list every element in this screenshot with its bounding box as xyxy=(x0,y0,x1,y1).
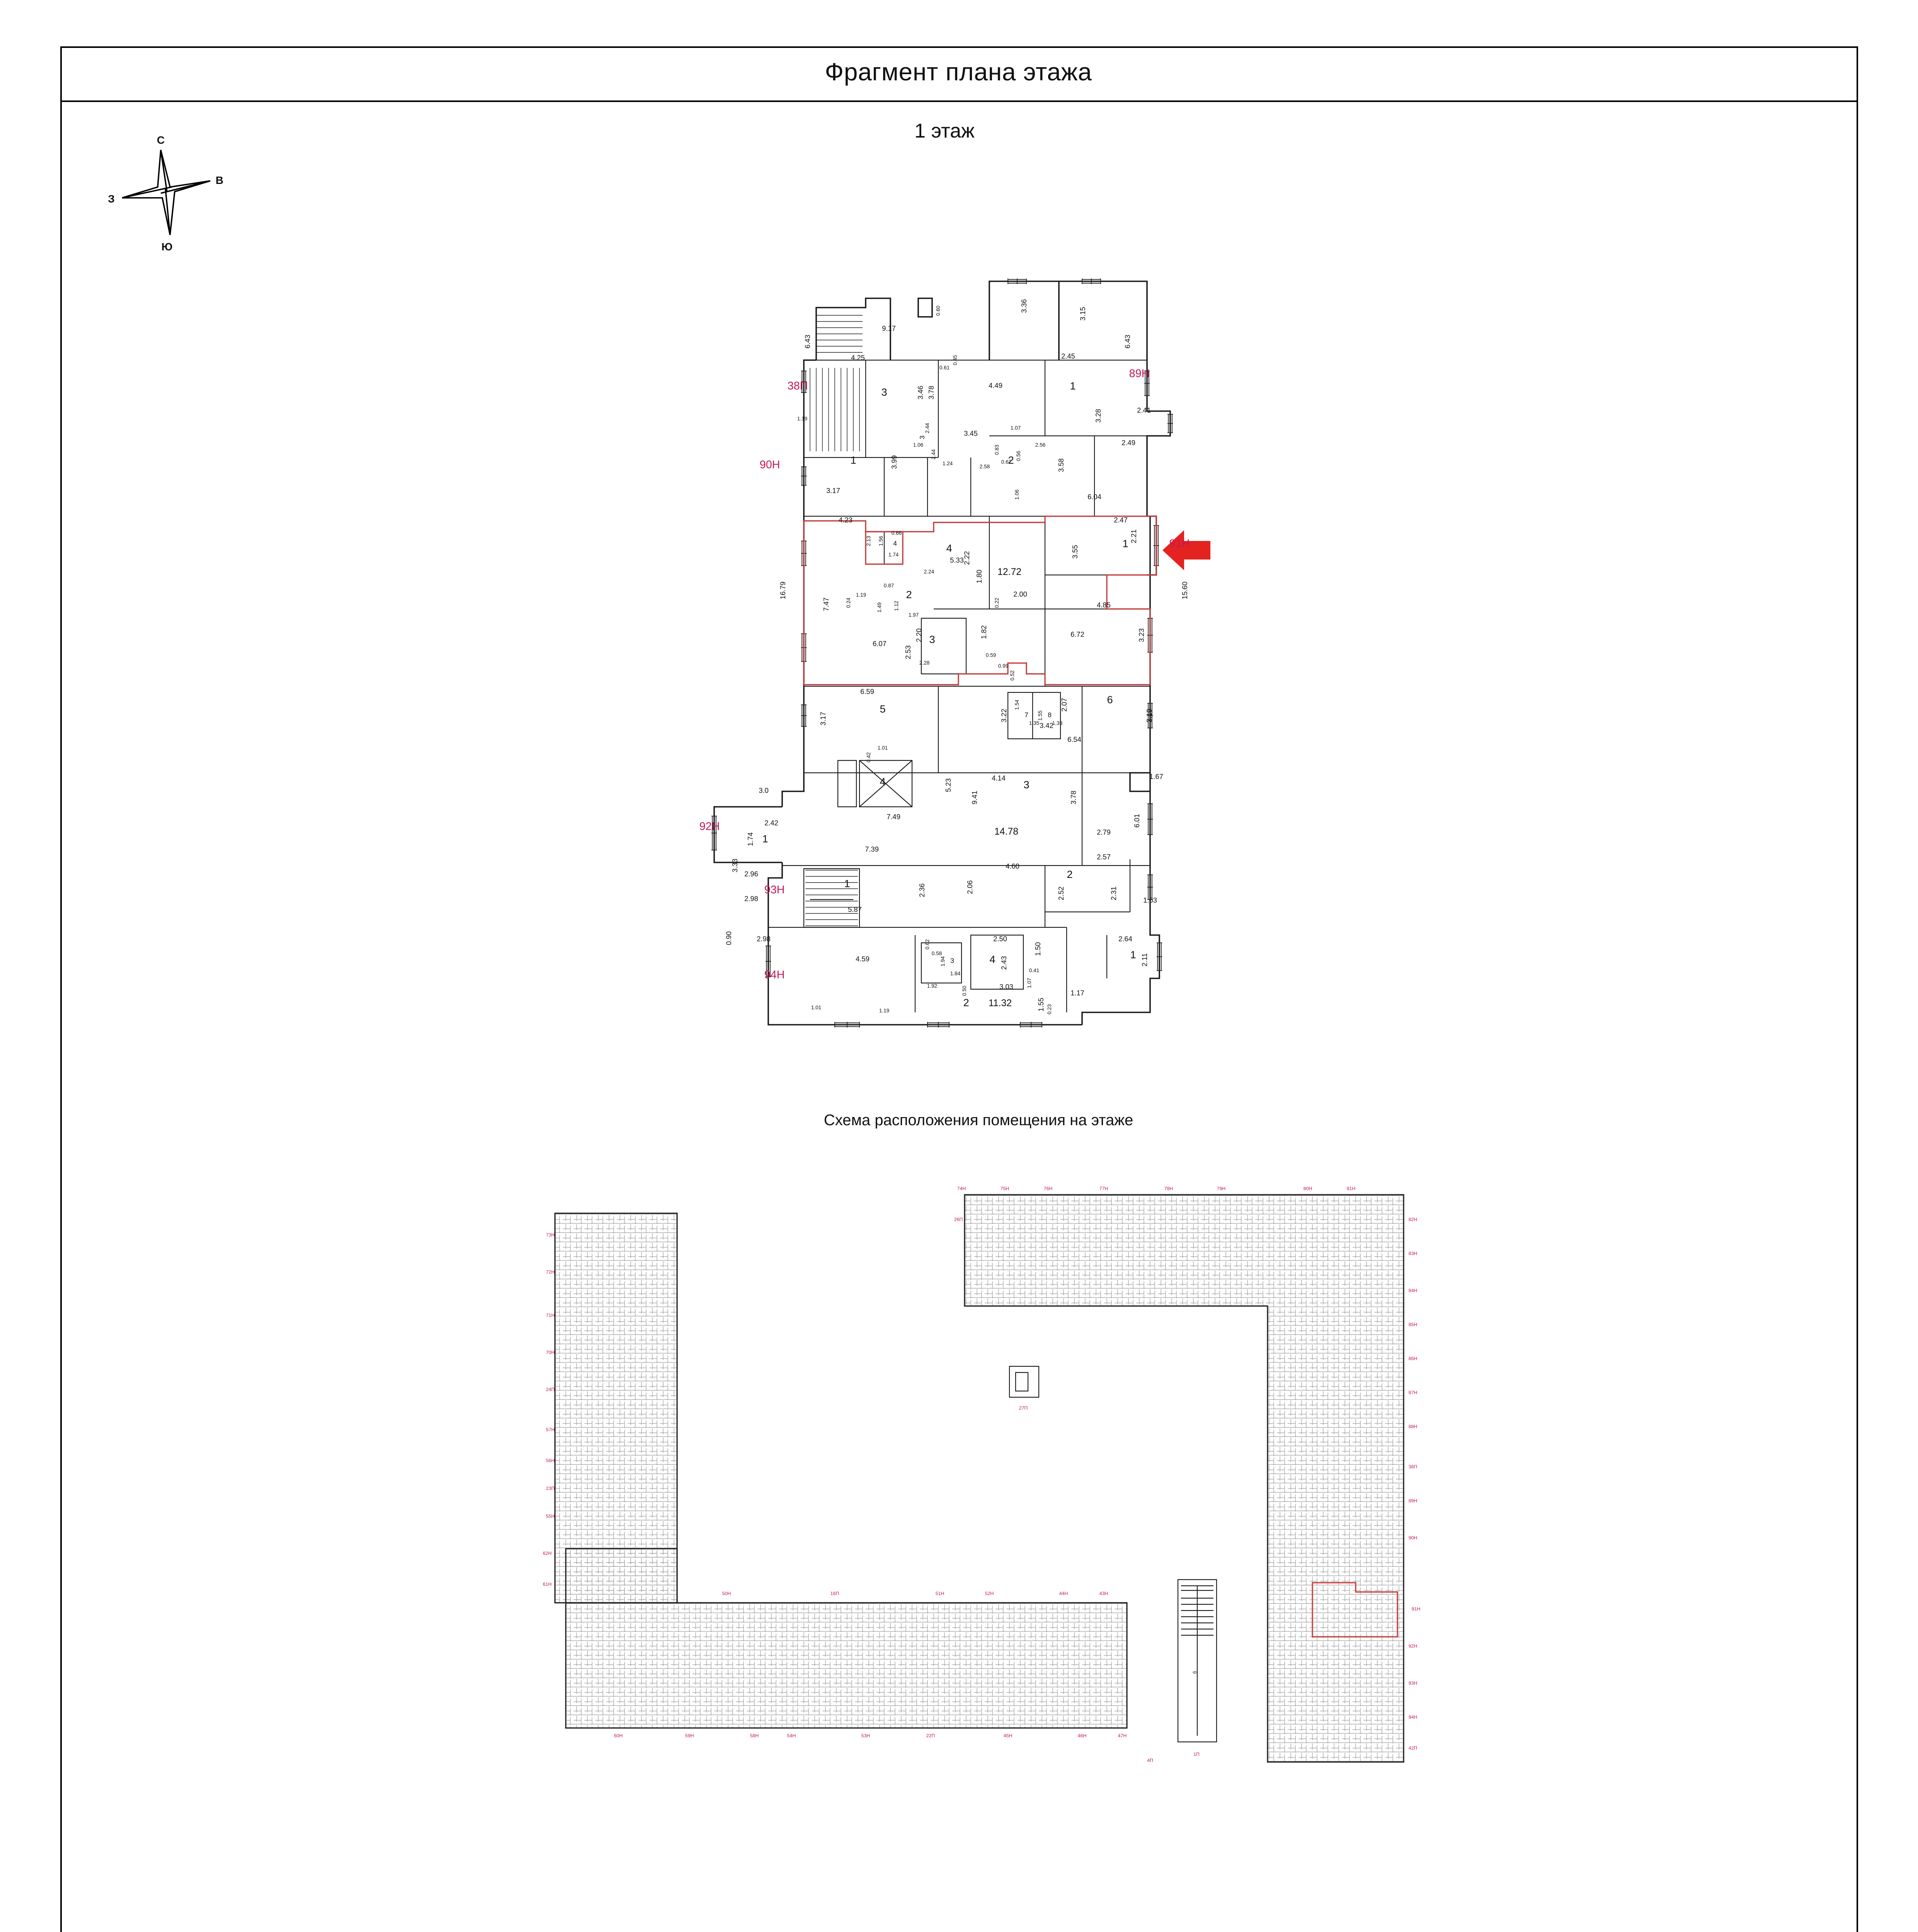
premise-number-label: 38П xyxy=(788,380,808,392)
dimension-label: 2.13 xyxy=(866,536,871,546)
ramp-number-label: 6 xyxy=(1192,1671,1198,1674)
compass-south-label: Ю xyxy=(162,241,173,253)
dimension-label: 6.72 xyxy=(1070,630,1084,638)
dimension-label: 2.42 xyxy=(764,819,778,827)
scheme-premise-label: 82Н xyxy=(1409,1217,1418,1222)
compass-east-label: В xyxy=(216,174,223,186)
dimension-label: 1.06 xyxy=(1014,490,1020,500)
scheme-premise-label: 16П xyxy=(831,1591,839,1596)
dimension-label: 9.17 xyxy=(882,324,896,332)
room-number-label: 4 xyxy=(880,776,885,787)
dimension-label: 3.58 xyxy=(1057,458,1065,472)
dimension-label: 3.78 xyxy=(927,386,935,400)
scheme-premise-label: 4П xyxy=(1147,1758,1153,1763)
room-number-label: 6 xyxy=(1107,694,1113,706)
room-number-label: 3 xyxy=(1023,779,1029,791)
dimension-label: 1.07 xyxy=(1011,425,1021,431)
dimension-label: 1.54 xyxy=(1014,699,1020,710)
scheme-premise-label: 87Н xyxy=(1409,1390,1418,1395)
window-marks xyxy=(711,279,1173,1027)
scheme-premise-label: 27П xyxy=(1019,1405,1028,1411)
plan-walls xyxy=(714,281,1170,1025)
compass-north-label: С xyxy=(157,134,165,146)
floor-location-scheme: 74Н75Н76Н77Н78Н79Н80Н81Н26П27П73Н72Н71Н7… xyxy=(526,1082,1453,1793)
scheme-premise-label: 59Н xyxy=(685,1733,694,1738)
premise-number-label: 94Н xyxy=(764,969,785,981)
dimension-label: 0.50 xyxy=(962,985,967,996)
premise-number-label: 90Н xyxy=(760,459,780,471)
premise-number-label: 93Н xyxy=(764,884,785,896)
dimension-label: 2.11 xyxy=(1140,953,1149,966)
premise-number-label: 91Н xyxy=(1169,537,1190,550)
room-number-label: 8 xyxy=(1048,711,1052,719)
scheme-premise-label: 57Н xyxy=(546,1427,555,1432)
dimension-label: 2.44 xyxy=(931,449,936,459)
scheme-premise-label: 22П xyxy=(926,1733,935,1738)
scheme-premise-label: 86Н xyxy=(1409,1356,1418,1361)
dimension-label: 1.92 xyxy=(927,983,937,989)
dimension-label: 0.42 xyxy=(866,752,871,762)
dimension-label: 1.97 xyxy=(909,612,919,618)
dimension-label: 4.25 xyxy=(851,354,865,362)
premise-number-label: 89Н xyxy=(1129,367,1150,380)
dimension-label: 6.01 xyxy=(1133,814,1141,828)
dimension-label: 12.72 xyxy=(997,567,1021,577)
premise-91n-arrow-icon xyxy=(1162,530,1210,570)
dimension-label: 2.96 xyxy=(744,870,758,878)
room-number-label: 1 xyxy=(1070,380,1076,392)
dimension-label: 3.45 xyxy=(964,429,978,437)
dimension-label: 0.41 xyxy=(1029,968,1039,973)
dimension-label: 4.49 xyxy=(989,381,1002,389)
dimension-label: 0.24 xyxy=(846,597,851,608)
dimension-label: 6.43 xyxy=(803,335,812,349)
dimension-label: 3.15 xyxy=(1079,307,1087,321)
scheme-premise-label: 73Н xyxy=(546,1232,555,1238)
dimension-label: 1.35 xyxy=(1029,720,1039,726)
dimension-label: 5.23 xyxy=(944,778,952,792)
scheme-premise-label: 84Н xyxy=(1409,1288,1418,1293)
dimension-label: 1.12 xyxy=(893,601,899,611)
scheme-premise-label: 80Н xyxy=(1304,1186,1312,1191)
dimension-label: 2.06 xyxy=(966,880,974,894)
dimension-label: 2.45 xyxy=(1061,352,1075,360)
dimension-label: 1.82 xyxy=(980,625,988,639)
scheme-premise-label: 70Н xyxy=(546,1350,555,1355)
scheme-premise-label: 23П xyxy=(546,1486,555,1491)
scheme-premise-label: 44Н xyxy=(1059,1591,1068,1596)
scheme-premise-label: 50Н xyxy=(722,1591,731,1596)
dimension-label: 1.19 xyxy=(879,1008,889,1014)
dimension-label: 2.47 xyxy=(1114,516,1128,524)
scheme-premise-label: 62Н xyxy=(543,1551,552,1556)
stair-hatch-marks xyxy=(805,315,863,926)
dimension-label: 1.01 xyxy=(811,1005,821,1010)
dimension-label: 2.28 xyxy=(919,660,929,666)
dimension-label: 3.55 xyxy=(1071,545,1079,559)
dimension-label: 7.47 xyxy=(822,597,830,611)
scheme-premise-label: 71Н xyxy=(546,1313,555,1318)
room-number-label: 5 xyxy=(880,703,885,715)
scheme-premise-label: 51Н xyxy=(936,1591,945,1596)
scheme-premise-label: 58Н xyxy=(750,1733,759,1738)
dimension-label: 4.23 xyxy=(839,516,853,524)
dimension-label: 2.52 xyxy=(1057,886,1065,900)
title-band: Фрагмент плана этажа xyxy=(60,46,1857,102)
dimension-label: 2.43 xyxy=(1000,956,1008,970)
dimension-label: 2.79 xyxy=(1097,828,1111,836)
room-number-label: 1 xyxy=(762,833,768,845)
stair-hatch xyxy=(805,870,858,926)
dimension-label: 3.28 xyxy=(1094,409,1102,423)
dimension-label: 2.20 xyxy=(915,628,923,642)
dimension-label: 0.56 xyxy=(1016,451,1021,461)
floor-plan-document-page: Фрагмент плана этажа 1 этаж С В З Ю xyxy=(0,0,1918,1932)
room-number-label: 2 xyxy=(906,588,912,600)
room-number-label: 3 xyxy=(950,957,954,964)
dimension-label: 1.67 xyxy=(1149,772,1163,781)
room-number-label: 7 xyxy=(1025,711,1028,719)
scheme-premise-label: 26П xyxy=(954,1217,963,1222)
scheme-premise-label: 93Н xyxy=(1409,1680,1418,1686)
scheme-premise-label: 45Н xyxy=(1004,1733,1013,1738)
dimension-label: 6.04 xyxy=(1087,493,1101,501)
scheme-premise-label: 43Н xyxy=(1099,1591,1108,1596)
scheme-premise-label: 88Н xyxy=(1409,1424,1418,1429)
dimension-label: 2.98 xyxy=(744,895,758,903)
dimension-label: 1.01 xyxy=(878,745,888,751)
dimension-label: 1.19 xyxy=(856,592,866,598)
dimension-label: 1.33 xyxy=(1052,720,1062,726)
dimension-label: 7.39 xyxy=(865,845,879,853)
scheme-premise-label: 78Н xyxy=(1164,1186,1173,1191)
dimension-label: 3.22 xyxy=(1000,709,1008,723)
dimension-label: 1.56 xyxy=(878,536,884,546)
room-number-label: 1 xyxy=(1122,537,1128,549)
stair-hatch xyxy=(816,315,863,352)
detached-block xyxy=(1009,1366,1039,1397)
dimension-label: 2.53 xyxy=(904,645,912,659)
scheme-premise-label: 54Н xyxy=(787,1733,796,1738)
scheme-premise-label: 1П xyxy=(1193,1752,1200,1757)
dimension-label: 4.59 xyxy=(856,955,870,963)
scheme-premise-label: 53Н xyxy=(861,1733,870,1738)
dimension-label: 6.07 xyxy=(873,639,887,648)
dimension-label: 1.50 xyxy=(1034,942,1042,956)
scheme-premise-label: 91Н xyxy=(1412,1606,1421,1612)
scheme-premise-label: 72Н xyxy=(546,1269,555,1275)
dimension-label: 1.63 xyxy=(1143,896,1157,904)
dimension-label: 3.42 xyxy=(1040,721,1053,730)
room-number-label: 3 xyxy=(918,435,926,439)
dimension-label: 0.22 xyxy=(994,598,1000,608)
dimension-label: 3.99 xyxy=(890,455,898,469)
dimension-label: 6.43 xyxy=(1123,335,1132,349)
plan-partitions xyxy=(768,360,1150,1012)
dimension-label: 1.17 xyxy=(1070,989,1084,997)
dimension-label: 1.55 xyxy=(1037,711,1043,721)
scheme-premise-label: 79Н xyxy=(1217,1186,1226,1191)
dimension-label: 6.59 xyxy=(860,687,874,696)
dimension-label: 0.62 xyxy=(924,939,930,949)
dimension-label: 2.22 xyxy=(963,551,971,565)
scheme-premise-label: 38П xyxy=(1409,1464,1418,1469)
dimension-label: 1.55 xyxy=(1037,998,1045,1012)
dimension-label: 1.74 xyxy=(888,552,899,558)
scheme-premise-label: 52Н xyxy=(985,1591,994,1596)
stair-hatch xyxy=(810,368,859,451)
dimension-label: 1.24 xyxy=(943,461,953,466)
dimension-label: 4.85 xyxy=(1097,601,1111,609)
scheme-premise-label: 89Н xyxy=(1409,1498,1418,1503)
dimension-label: 1.74 xyxy=(746,832,754,846)
dimension-label: 0.61 xyxy=(939,365,950,371)
room-number-label: 2 xyxy=(1008,454,1014,466)
room-number-label: 1 xyxy=(850,454,856,466)
dimension-label: 3.46 xyxy=(916,386,924,400)
dimension-label: 3.23 xyxy=(1137,628,1145,642)
dimension-label: 2.50 xyxy=(993,935,1007,943)
dimension-label: 1.06 xyxy=(913,442,923,448)
dimension-label: 0.58 xyxy=(932,951,942,956)
dimension-label: 1.19 xyxy=(797,416,807,422)
scheme-premise-label: 83Н xyxy=(1409,1251,1418,1256)
floor-plan-fragment: 6.439.170.603.363.156.434.2538П33.463.78… xyxy=(696,270,1229,1036)
floor-subtitle: 1 этаж xyxy=(0,119,1889,142)
dimension-label: 0.45 xyxy=(952,355,958,365)
dimension-label: 0.87 xyxy=(884,583,894,588)
dimension-label: 0.83 xyxy=(994,445,1000,455)
dimension-label: 2.57 xyxy=(1097,853,1111,861)
dimension-label: 1.80 xyxy=(975,570,983,583)
dimension-label: 3.17 xyxy=(819,712,827,726)
dimension-label: 3.03 xyxy=(999,983,1013,991)
dimension-label: 11.32 xyxy=(989,998,1012,1009)
room-number-label: 1 xyxy=(1130,949,1136,961)
dimension-label: 2.24 xyxy=(924,569,934,575)
scheme-premise-label: 77Н xyxy=(1099,1186,1108,1191)
dimension-label: 0.90 xyxy=(725,931,733,945)
scheme-premise-label: 42П xyxy=(1409,1745,1418,1751)
building-wings xyxy=(555,1195,1404,1762)
scheme-premise-label: 56Н xyxy=(546,1458,555,1463)
dimension-label: 2.98 xyxy=(757,935,771,943)
new-premise-boundary xyxy=(804,516,1156,685)
room-number-label: 1 xyxy=(844,878,850,889)
scheme-premise-label: 94Н xyxy=(1409,1714,1418,1720)
dimension-label: 3.0 xyxy=(759,786,769,794)
dimension-label: 16.79 xyxy=(779,582,787,599)
dimension-label: 2.49 xyxy=(1122,439,1135,447)
dimension-label: 4.60 xyxy=(1006,862,1019,870)
dimension-label: 2.00 xyxy=(1013,590,1027,598)
page-title: Фрагмент плана этажа xyxy=(825,60,1092,88)
dimension-label: 2.31 xyxy=(1110,886,1118,900)
dimension-label: 1.49 xyxy=(876,602,882,612)
dimension-label: 3.33 xyxy=(731,859,739,872)
dimension-label: 0.59 xyxy=(986,652,996,658)
scheme-premise-label: 24П xyxy=(546,1387,555,1392)
room-number-label: 4 xyxy=(989,953,995,965)
compass-west-label: З xyxy=(108,193,115,205)
scheme-premise-label: 81Н xyxy=(1347,1186,1356,1191)
dimension-label: 14.78 xyxy=(994,827,1018,837)
room-number-label: 3 xyxy=(881,386,887,398)
dimension-label: 2.64 xyxy=(1118,935,1132,943)
compass-rose-icon: С В З Ю xyxy=(93,124,247,270)
scheme-premise-label: 76Н xyxy=(1044,1186,1053,1191)
scheme-premise-label: 60Н xyxy=(614,1733,623,1738)
dimension-label: 3.17 xyxy=(826,486,840,495)
dimension-label: 15.60 xyxy=(1181,582,1189,599)
scheme-premise-label: 74Н xyxy=(957,1186,966,1191)
dimension-label: 0.66 xyxy=(892,530,902,536)
scheme-premise-label: 61Н xyxy=(543,1582,552,1587)
room-number-label: 4 xyxy=(893,539,897,547)
dimension-label: 0.23 xyxy=(1047,1004,1052,1014)
room-number-label: 3 xyxy=(929,633,935,645)
scheme-premise-label: 75Н xyxy=(1001,1186,1009,1191)
dimension-label: 2.07 xyxy=(1060,698,1068,712)
scheme-premise-label: 47Н xyxy=(1118,1733,1127,1738)
dimension-label: 2.41 xyxy=(1137,406,1151,414)
dimension-label: 2.21 xyxy=(1130,529,1138,543)
scheme-premise-label: 46Н xyxy=(1078,1733,1087,1738)
scheme-premise-label: 55Н xyxy=(546,1514,555,1519)
dimension-label: 6.54 xyxy=(1067,735,1081,743)
dimension-label: 1.94 xyxy=(940,956,946,966)
room-number-label: 4 xyxy=(946,542,952,554)
scheme-premise-label: 85Н xyxy=(1409,1322,1418,1327)
dimension-label: 0.52 xyxy=(1009,670,1015,680)
dimension-label: 2.58 xyxy=(980,464,990,469)
dimension-label: 1.07 xyxy=(1026,978,1032,988)
scheme-premise-label: 90Н xyxy=(1409,1535,1418,1541)
dimension-label: 0.99 xyxy=(998,663,1008,669)
dimension-label: 2.36 xyxy=(918,883,926,897)
courtyard-ramp xyxy=(1178,1580,1217,1742)
dimension-label: 7.49 xyxy=(887,813,900,821)
dimension-label: 1.84 xyxy=(950,971,961,976)
dimension-label: 3.78 xyxy=(1069,791,1077,804)
premise-number-label: 92Н xyxy=(699,820,720,833)
room-number-label: 2 xyxy=(963,997,969,1009)
plan-dimension-labels: 6.439.170.603.363.156.434.2538П33.463.78… xyxy=(699,299,1190,1014)
dimension-label: 5.87 xyxy=(848,905,862,913)
dimension-label: 4.14 xyxy=(992,774,1006,782)
dimension-label: 0.60 xyxy=(935,305,941,316)
dimension-label: 3.36 xyxy=(1020,299,1028,313)
dimension-label: 5.33 xyxy=(950,556,964,564)
dimension-label: 9.41 xyxy=(970,791,979,804)
scheme-premise-label: 92Н xyxy=(1409,1643,1418,1649)
dimension-label: 2.44 xyxy=(924,423,930,433)
dimension-label: 2.56 xyxy=(1035,442,1045,448)
dimension-label: 3.19 xyxy=(1145,709,1153,723)
room-number-label: 2 xyxy=(1067,868,1072,880)
